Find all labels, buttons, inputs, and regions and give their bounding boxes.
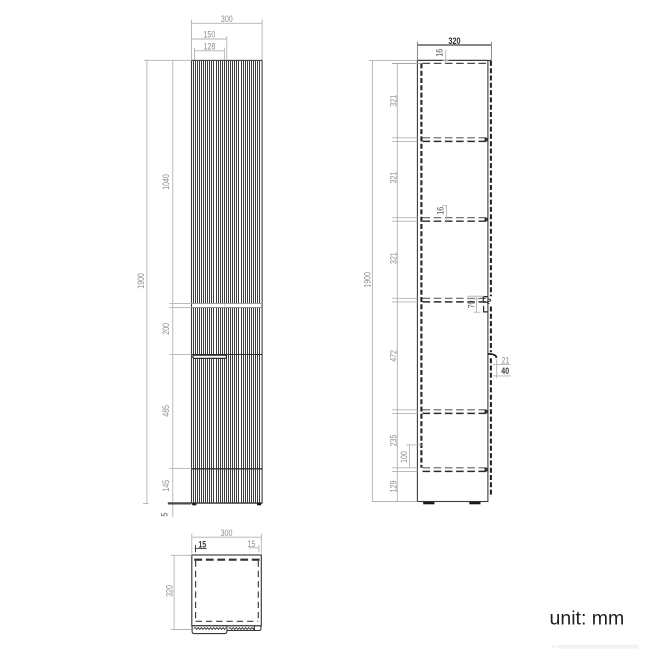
svg-text:15: 15 <box>248 539 256 549</box>
svg-text:200: 200 <box>161 323 171 335</box>
svg-text:15: 15 <box>198 539 206 549</box>
svg-text:21: 21 <box>502 355 510 365</box>
svg-text:321: 321 <box>388 172 398 184</box>
svg-text:100: 100 <box>399 451 409 463</box>
svg-text:16: 16 <box>435 49 445 57</box>
svg-text:5: 5 <box>160 513 170 517</box>
svg-text:1900: 1900 <box>136 273 146 289</box>
svg-text:320: 320 <box>165 585 175 597</box>
svg-text:472: 472 <box>388 350 398 362</box>
svg-text:145: 145 <box>161 480 171 492</box>
svg-text:1900: 1900 <box>363 272 373 288</box>
svg-text:300: 300 <box>221 528 233 538</box>
svg-text:1040: 1040 <box>161 174 171 190</box>
svg-text:70: 70 <box>467 301 477 309</box>
svg-text:485: 485 <box>161 405 171 417</box>
svg-text:235: 235 <box>388 435 398 447</box>
svg-text:150: 150 <box>204 30 216 40</box>
svg-text:40: 40 <box>501 366 509 376</box>
svg-text:unit: mm: unit: mm <box>550 608 625 630</box>
svg-text:16: 16 <box>436 207 446 215</box>
svg-text:300: 300 <box>221 14 233 24</box>
svg-text:320: 320 <box>448 36 460 46</box>
svg-text:321: 321 <box>388 252 398 264</box>
svg-text:321: 321 <box>388 95 398 107</box>
svg-text:128: 128 <box>204 41 216 51</box>
svg-text:129: 129 <box>388 481 398 493</box>
